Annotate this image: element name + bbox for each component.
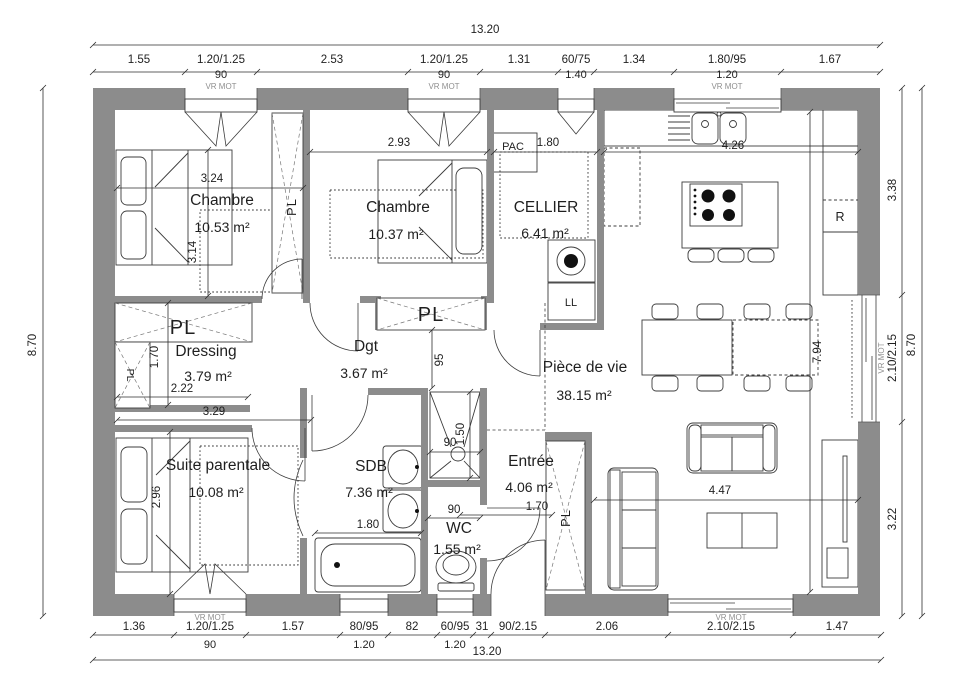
- dim-interior: 2.93: [388, 137, 410, 149]
- wall-interior: [597, 110, 604, 330]
- tv-unit: [822, 440, 858, 587]
- wall-interior: [540, 323, 604, 330]
- chair: [786, 376, 812, 391]
- room-name-cellier: CELLIER: [514, 199, 579, 216]
- dim-left-line: [40, 85, 46, 619]
- dim-top-seg: 1.20/1.25: [197, 54, 245, 66]
- dim-right-total-line: [919, 85, 925, 619]
- dim-top-sub: 1.20: [716, 69, 737, 81]
- room-area-piece-de-vie: 38.15 m²: [556, 387, 612, 403]
- dim-chambre2-w: [307, 149, 490, 155]
- dim-interior: 7.94: [812, 340, 824, 363]
- stool: [748, 249, 774, 262]
- door-sdb: [312, 395, 368, 451]
- floor-plan-drawing: 13.20 1.55 1.20/1.25 2.53 1.20/1.25 1.31…: [0, 0, 960, 691]
- wall-interior: [428, 480, 487, 487]
- room-area-wc: 1.55 m²: [433, 541, 481, 557]
- door-wc: [487, 508, 540, 561]
- dim-top-seg: 2.53: [321, 54, 343, 66]
- dim-top-sub: 90: [215, 69, 227, 81]
- door-suite-sdb: [294, 460, 303, 536]
- room-area-suite: 10.08 m²: [188, 484, 244, 500]
- heat-pump-label: PAC: [502, 141, 524, 153]
- dim-right-seg: 2.10/2.15: [887, 334, 899, 382]
- sofa: [608, 468, 658, 590]
- dim-bottom-seg: 1.36: [123, 621, 145, 633]
- chair: [744, 376, 770, 391]
- chair: [697, 376, 723, 391]
- window-cellier: [558, 88, 594, 134]
- dim-bottom-seg: 82: [406, 621, 419, 633]
- shutter-label: VR MOT: [711, 82, 742, 91]
- floor-plan: 13.20 1.55 1.20/1.25 2.53 1.20/1.25 1.31…: [0, 0, 960, 691]
- dim-top-seg: 1.55: [128, 54, 150, 66]
- dining-table-extension: [733, 320, 818, 375]
- dim-bottom-sub: 1.20: [353, 639, 374, 651]
- wall-interior: [115, 425, 252, 432]
- chair: [744, 304, 770, 319]
- dim-bottom-sub: 90: [204, 639, 216, 651]
- dining-set: [642, 304, 818, 391]
- room-name-sdb: SDB: [355, 458, 387, 475]
- dim-bottom-seg: 80/95: [350, 621, 379, 633]
- closet-label: PL: [418, 304, 444, 326]
- dim-interior: 1.50: [455, 423, 467, 445]
- wall-interior: [480, 558, 487, 594]
- stool: [688, 249, 714, 262]
- dim-top-seg: 1.34: [623, 54, 646, 66]
- dim-bottom-seg: 1.47: [826, 621, 848, 633]
- room-name-dressing: Dressing: [175, 343, 236, 360]
- window-chambre2: [408, 88, 480, 146]
- dim-top-seg-line: [90, 69, 883, 75]
- room-area-sdb: 7.36 m²: [345, 484, 393, 500]
- dim-right-seg: 3.38: [887, 179, 899, 201]
- dim-bottom-seg: 1.57: [282, 621, 304, 633]
- wall-interior: [300, 388, 307, 458]
- dim-top-seg: 60/75: [562, 54, 591, 66]
- dim-top-total-line: [90, 42, 883, 48]
- wall-interior: [303, 110, 310, 303]
- dim-bottom-total: 13.20: [473, 646, 502, 658]
- dim-interior: 1.70: [526, 501, 548, 513]
- room-area-entree: 4.06 m²: [505, 479, 553, 495]
- dim-interior: 95: [434, 354, 446, 367]
- shutter-label: VR MOT: [205, 82, 236, 91]
- washing-machine-label: LL: [565, 297, 577, 309]
- dim-interior: 1.70: [149, 346, 161, 368]
- window-wc: [437, 594, 473, 616]
- dim-bottom-seg: 1.20/1.25: [186, 621, 234, 633]
- room-area-chambre2: 10.37 m²: [368, 226, 424, 242]
- dim-top-sub: 1.40: [565, 69, 586, 81]
- dim-interior: 2.96: [151, 486, 163, 508]
- wall-interior: [421, 388, 428, 594]
- room-name-chambre1: Chambre: [190, 192, 254, 209]
- chair: [652, 304, 678, 319]
- door-cellier: [494, 330, 540, 376]
- kitchen-return-counter: [604, 148, 640, 226]
- dim-bottom-sub: 1.20: [444, 639, 465, 651]
- window-kitchen: [674, 88, 781, 112]
- dim-interior: 1.80: [357, 519, 379, 531]
- dim-interior: 90: [448, 504, 461, 516]
- wall-interior: [480, 388, 487, 505]
- room-area-dressing: 3.79 m²: [184, 368, 232, 384]
- closet-label: PL: [284, 198, 299, 216]
- kitchen-island: [682, 182, 778, 262]
- closet-label: PL: [170, 317, 196, 339]
- dim-top-seg: 1.67: [819, 54, 841, 66]
- dim-bottom-seg: 2.06: [596, 621, 618, 633]
- sdb-fixtures: [315, 392, 480, 592]
- room-name-chambre2: Chambre: [366, 199, 430, 216]
- dining-table: [642, 320, 732, 375]
- dim-top-sub: 90: [438, 69, 450, 81]
- dim-interior: 3.24: [201, 173, 224, 185]
- closet-label: PL: [124, 369, 136, 382]
- wall-interior: [360, 296, 375, 303]
- dim-left-total: 8.70: [27, 334, 39, 356]
- dim-right-total: 8.70: [906, 334, 918, 356]
- dim-interior: 4.26: [722, 140, 744, 152]
- dim-interior: 2.22: [171, 383, 193, 395]
- fridge-label: R: [835, 210, 844, 224]
- bathtub: [315, 538, 421, 592]
- shutter-label: VR MOT: [428, 82, 459, 91]
- wall-interior: [585, 441, 592, 594]
- dim-interior: 3.14: [187, 240, 199, 263]
- wall-interior: [368, 388, 428, 395]
- dim-top-seg: 1.80/95: [708, 54, 746, 66]
- wall-interior: [487, 110, 494, 303]
- room-name-suite: Suite parentale: [166, 457, 270, 474]
- window-chambre1: [185, 88, 257, 146]
- dim-bottom-seg: 31: [476, 621, 489, 633]
- open-boundary: [487, 303, 545, 430]
- dim-bottom-seg: 2.10/2.15: [707, 621, 755, 633]
- room-name-piece-de-vie: Pièce de vie: [543, 359, 627, 376]
- dim-interior: 1.80: [537, 137, 559, 149]
- wall-interior: [545, 432, 592, 441]
- sink-basin: [692, 113, 718, 144]
- dim-interior: 3.29: [203, 406, 225, 418]
- toilet: [436, 551, 476, 591]
- room-area-chambre1: 10.53 m²: [194, 219, 250, 235]
- dim-bottom-seg: 90/2.15: [499, 621, 537, 633]
- dim-interior: 4.47: [709, 485, 731, 497]
- wall-interior: [300, 538, 307, 594]
- shutter-label: VR MOT: [877, 342, 886, 373]
- dim-bottom-seg: 60/95: [441, 621, 470, 633]
- dim-top-seg: 1.20/1.25: [420, 54, 468, 66]
- wall-exterior-left: [93, 88, 115, 616]
- dim-top-total: 13.20: [471, 24, 500, 36]
- room-name-wc: WC: [446, 520, 472, 537]
- room-name-dgt: Dgt: [354, 338, 379, 355]
- wall-interior: [115, 296, 262, 303]
- chair: [697, 304, 723, 319]
- window-sdb: [340, 594, 388, 616]
- room-name-entree: Entrée: [508, 453, 554, 470]
- door-chambre2: [310, 303, 358, 351]
- dim-top-seg: 1.31: [508, 54, 530, 66]
- dim-right-seg-line: [899, 85, 905, 619]
- kitchen-tall-unit: [823, 110, 858, 295]
- room-area-cellier: 6.41 m²: [521, 225, 569, 241]
- dim-right-seg: 3.22: [887, 508, 899, 530]
- closet-label: PL: [558, 509, 573, 527]
- stool: [718, 249, 744, 262]
- room-area-dgt: 3.67 m²: [340, 365, 388, 381]
- chair: [652, 376, 678, 391]
- chair: [786, 304, 812, 319]
